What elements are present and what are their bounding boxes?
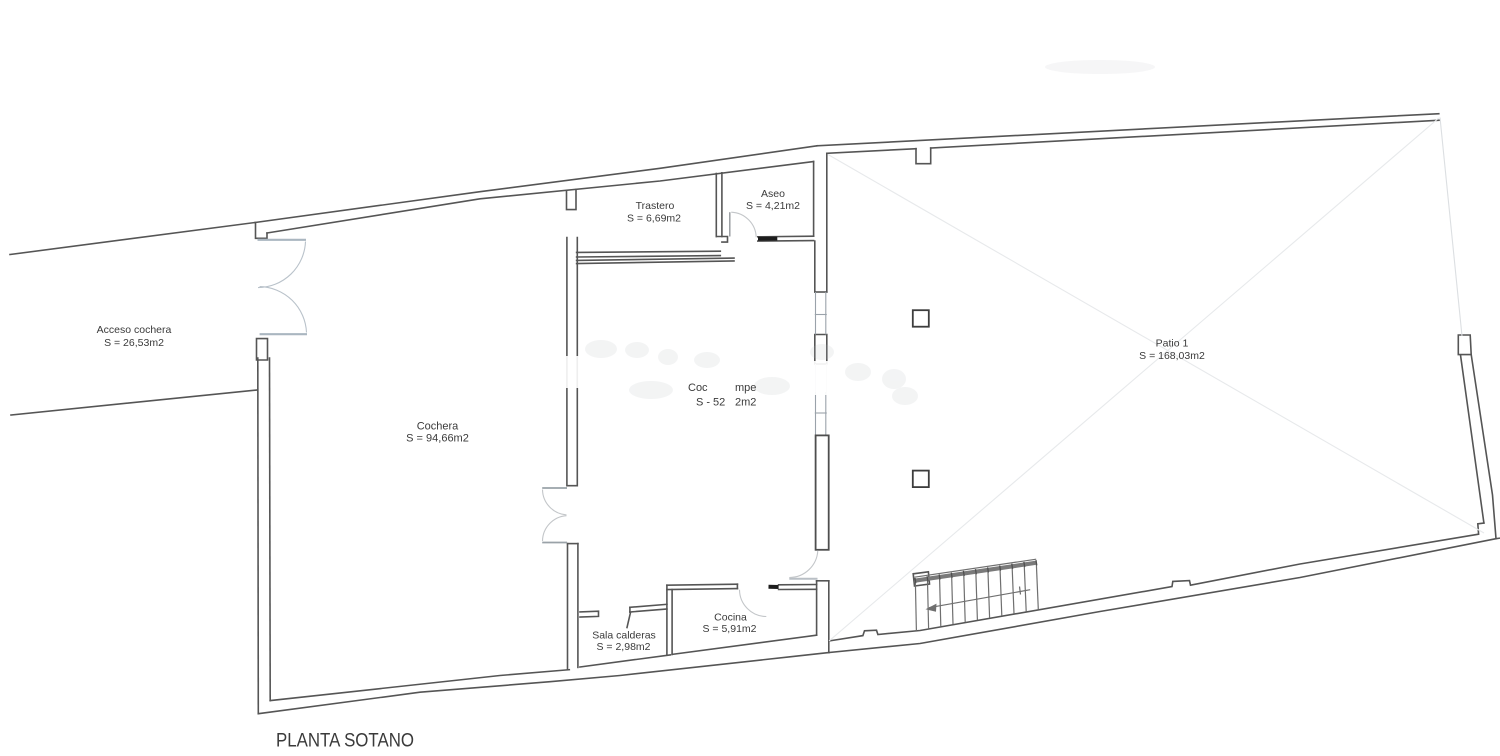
svg-text:Aseo: Aseo bbox=[761, 188, 785, 200]
svg-text:mpe: mpe bbox=[735, 382, 756, 394]
svg-text:S = 4,21m2: S = 4,21m2 bbox=[746, 200, 800, 212]
svg-text:S -: S - bbox=[696, 397, 710, 409]
svg-text:2m2: 2m2 bbox=[735, 397, 756, 409]
svg-text:52: 52 bbox=[713, 397, 725, 409]
svg-text:Acceso cochera: Acceso cochera bbox=[97, 324, 172, 336]
svg-text:PLANTA SOTANO: PLANTA SOTANO bbox=[276, 730, 414, 752]
svg-text:Patio 1: Patio 1 bbox=[1156, 338, 1189, 350]
svg-text:S = 6,69m2: S = 6,69m2 bbox=[627, 213, 681, 225]
svg-text:Coc: Coc bbox=[688, 382, 708, 394]
svg-text:Trastero: Trastero bbox=[636, 200, 675, 212]
svg-text:Sala calderas: Sala calderas bbox=[592, 630, 656, 642]
svg-text:S = 5,91m2: S = 5,91m2 bbox=[703, 623, 757, 635]
svg-text:S = 94,66m2: S = 94,66m2 bbox=[406, 433, 469, 445]
svg-text:S = 2,98m2: S = 2,98m2 bbox=[597, 641, 651, 653]
svg-text:Cocina: Cocina bbox=[714, 612, 747, 624]
svg-text:S = 26,53m2: S = 26,53m2 bbox=[104, 337, 164, 349]
svg-text:Cochera: Cochera bbox=[417, 421, 459, 433]
svg-text:S = 168,03m2: S = 168,03m2 bbox=[1139, 350, 1205, 362]
